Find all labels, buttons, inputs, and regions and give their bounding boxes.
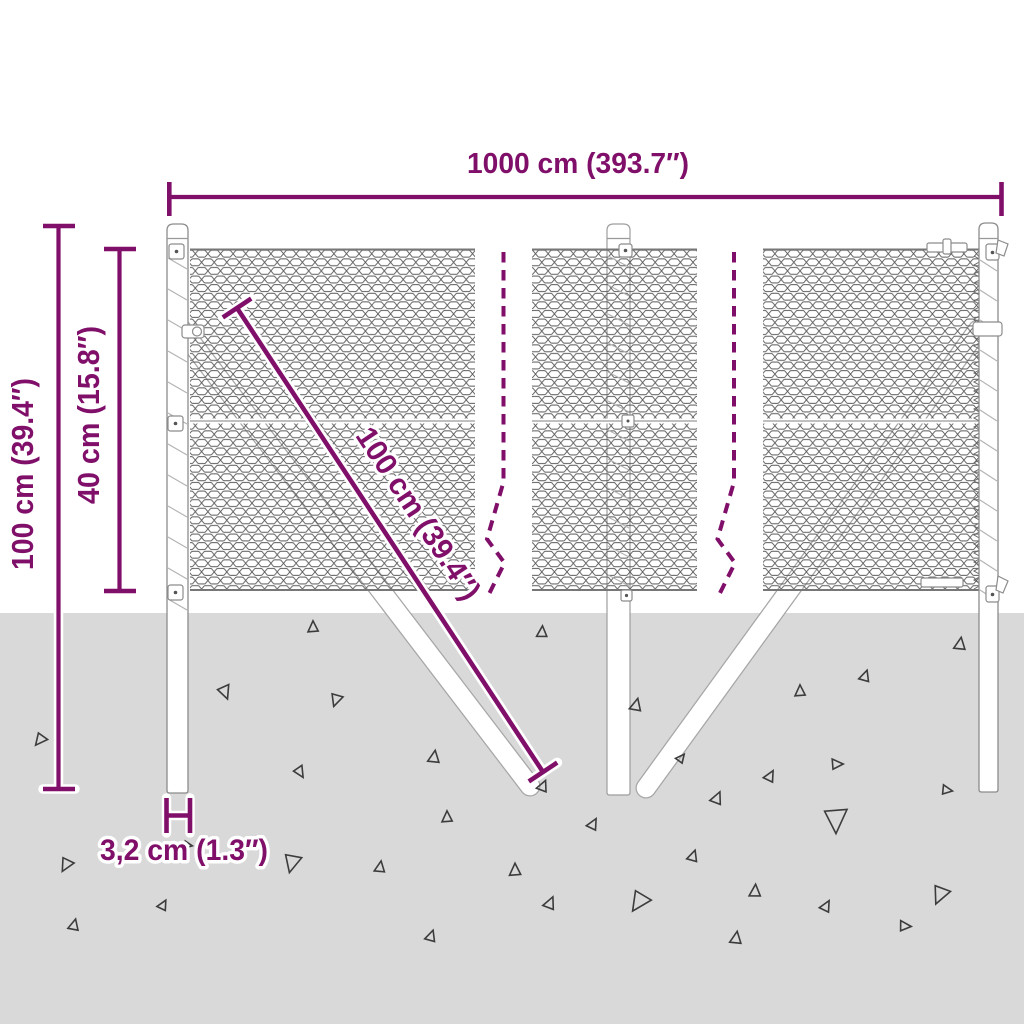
svg-text:100 cm (39.4″): 100 cm (39.4″) [5,378,40,570]
svg-text:40 cm (15.8″): 40 cm (15.8″) [71,326,106,504]
svg-text:1000 cm (393.7″): 1000 cm (393.7″) [467,148,689,180]
svg-text:3,2 cm (1.3″): 3,2 cm (1.3″) [100,834,268,867]
